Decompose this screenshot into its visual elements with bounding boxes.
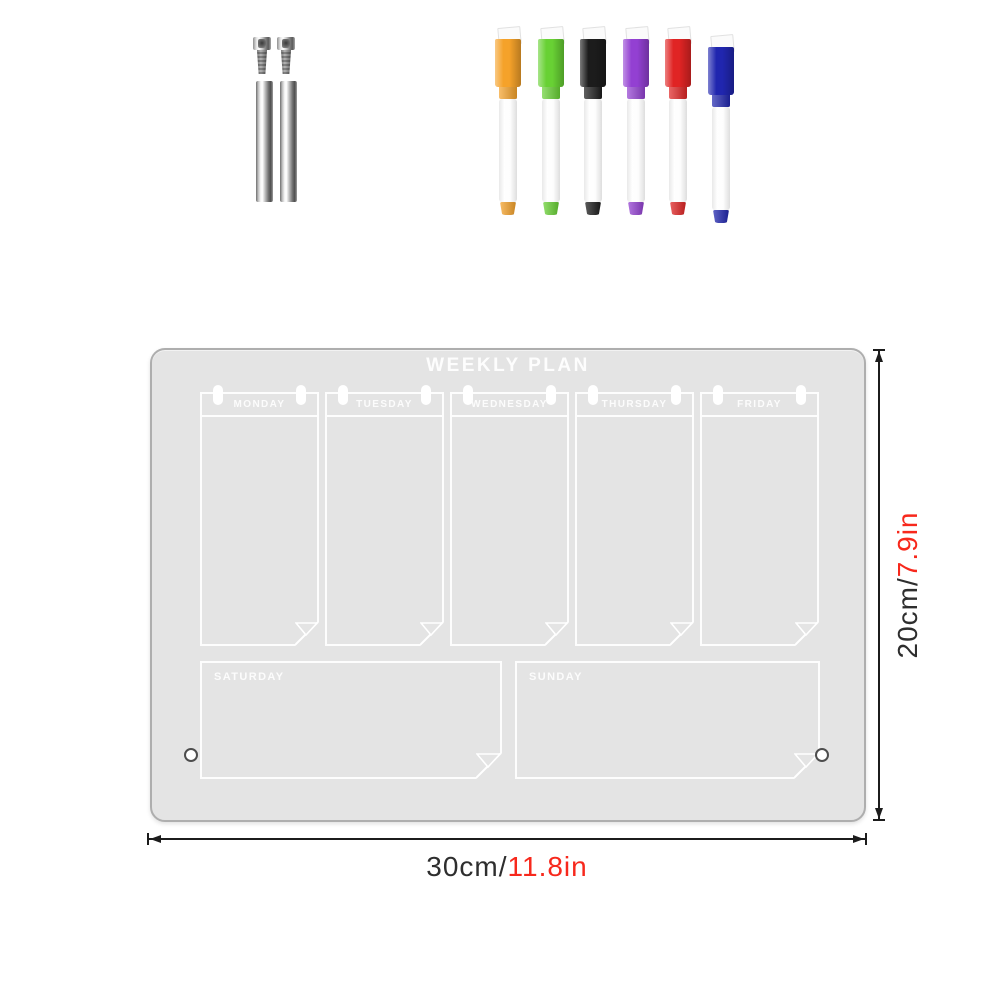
day-column-monday: MONDAY	[200, 392, 319, 646]
marker-cap	[538, 39, 564, 87]
day-column-tuesday: TUESDAY	[325, 392, 444, 646]
marker-barrel	[499, 99, 517, 202]
marker-plug	[543, 202, 559, 215]
marker-collar	[584, 87, 602, 99]
height-dimension-line	[878, 350, 880, 820]
day-label: THURSDAY	[602, 399, 668, 410]
marker-red	[663, 27, 693, 217]
dimension-end-cap	[865, 833, 867, 845]
metal-standoff	[280, 81, 297, 202]
day-label: TUESDAY	[356, 399, 413, 410]
height-dimension-label: 20cm/7.9in	[892, 512, 924, 659]
day-label: WEDNESDAY	[471, 399, 548, 410]
dimension-end-cap	[873, 819, 885, 821]
mounting-screw	[276, 37, 296, 75]
marker-cap	[708, 47, 734, 95]
width-metric-text: 30cm/	[426, 851, 507, 882]
marker-plug	[670, 202, 686, 215]
dimension-end-cap	[147, 833, 149, 845]
day-column-thursday: THURSDAY	[575, 392, 694, 646]
metal-standoff	[256, 81, 273, 202]
screw-hole	[815, 748, 829, 762]
screw-hole	[184, 748, 198, 762]
screw-thread	[256, 50, 268, 74]
marker-barrel	[627, 99, 645, 202]
marker-purple	[621, 27, 651, 217]
day-column-friday: FRIDAY	[700, 392, 819, 646]
day-box-saturday: SATURDAY	[200, 661, 502, 779]
marker-cap	[665, 39, 691, 87]
arrowhead-up-icon	[875, 351, 883, 362]
marker-plug	[628, 202, 644, 215]
screw-head	[277, 37, 295, 50]
screw-head	[253, 37, 271, 50]
marker-barrel	[712, 107, 730, 210]
marker-cap	[623, 39, 649, 87]
height-metric-text: 20cm/	[892, 577, 923, 658]
width-dimension-line	[148, 838, 866, 840]
marker-collar	[542, 87, 560, 99]
marker-barrel	[584, 99, 602, 202]
day-label: FRIDAY	[737, 399, 782, 410]
folded-corner-icon	[670, 622, 694, 646]
arrowhead-right-icon	[853, 835, 864, 843]
day-label: SATURDAY	[214, 671, 285, 683]
board-title: WEEKLY PLAN	[152, 355, 864, 377]
product-image: WEEKLY PLAN MONDAY TUESDAY WEDNESDAY	[0, 0, 1001, 1001]
folded-corner-icon	[295, 622, 319, 646]
marker-barrel	[669, 99, 687, 202]
day-box-sunday: SUNDAY	[515, 661, 820, 779]
folded-corner-icon	[795, 622, 819, 646]
day-label: MONDAY	[234, 399, 286, 410]
marker-barrel	[542, 99, 560, 202]
day-column-wednesday: WEDNESDAY	[450, 392, 569, 646]
acrylic-weekly-planner-board: WEEKLY PLAN MONDAY TUESDAY WEDNESDAY	[150, 348, 866, 822]
marker-cap	[495, 39, 521, 87]
marker-blue	[706, 35, 736, 225]
marker-collar	[627, 87, 645, 99]
screw-thread	[280, 50, 292, 74]
marker-collar	[669, 87, 687, 99]
folded-corner-icon	[420, 622, 444, 646]
height-imperial-text: 7.9in	[892, 512, 923, 578]
mounting-screw	[252, 37, 272, 75]
width-dimension-label: 30cm/11.8in	[148, 851, 866, 883]
marker-orange	[493, 27, 523, 217]
folded-corner-icon	[545, 622, 569, 646]
marker-plug	[713, 210, 729, 223]
marker-collar	[499, 87, 517, 99]
marker-plug	[500, 202, 516, 215]
marker-black	[578, 27, 608, 217]
folded-corner-icon	[476, 753, 502, 779]
arrowhead-left-icon	[150, 835, 161, 843]
marker-cap	[580, 39, 606, 87]
marker-collar	[712, 95, 730, 107]
marker-plug	[585, 202, 601, 215]
width-imperial-text: 11.8in	[508, 851, 588, 882]
marker-green	[536, 27, 566, 217]
day-label: SUNDAY	[529, 671, 583, 683]
arrowhead-down-icon	[875, 808, 883, 819]
